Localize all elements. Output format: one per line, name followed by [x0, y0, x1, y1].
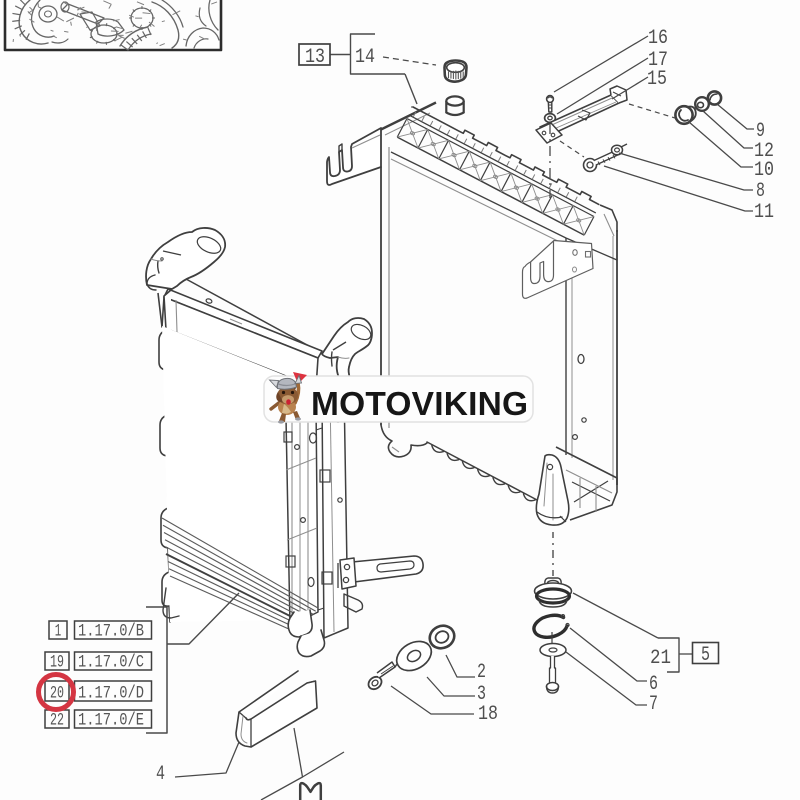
svg-text:5: 5: [701, 644, 710, 667]
svg-text:1.17.0/B: 1.17.0/B: [78, 622, 144, 642]
svg-text:22: 22: [50, 711, 64, 731]
svg-text:4: 4: [156, 763, 165, 786]
svg-text:1.17.0/E: 1.17.0/E: [78, 711, 144, 731]
svg-text:21: 21: [650, 647, 671, 670]
svg-text:14: 14: [355, 46, 375, 69]
svg-text:2: 2: [477, 661, 486, 684]
svg-text:13: 13: [305, 46, 325, 69]
svg-text:8: 8: [756, 180, 765, 203]
svg-text:18: 18: [478, 703, 498, 726]
svg-text:10: 10: [754, 159, 774, 182]
svg-text:20: 20: [50, 684, 64, 704]
svg-text:1.17.0/D: 1.17.0/D: [78, 684, 144, 704]
svg-text:1.17.0/C: 1.17.0/C: [78, 653, 144, 673]
svg-text:1: 1: [55, 622, 62, 642]
svg-text:7: 7: [649, 693, 658, 716]
svg-text:15: 15: [647, 68, 667, 91]
svg-text:16: 16: [648, 27, 668, 50]
svg-text:19: 19: [50, 653, 64, 673]
svg-text:11: 11: [754, 201, 774, 224]
svg-text:MOTOVIKING: MOTOVIKING: [311, 386, 528, 423]
